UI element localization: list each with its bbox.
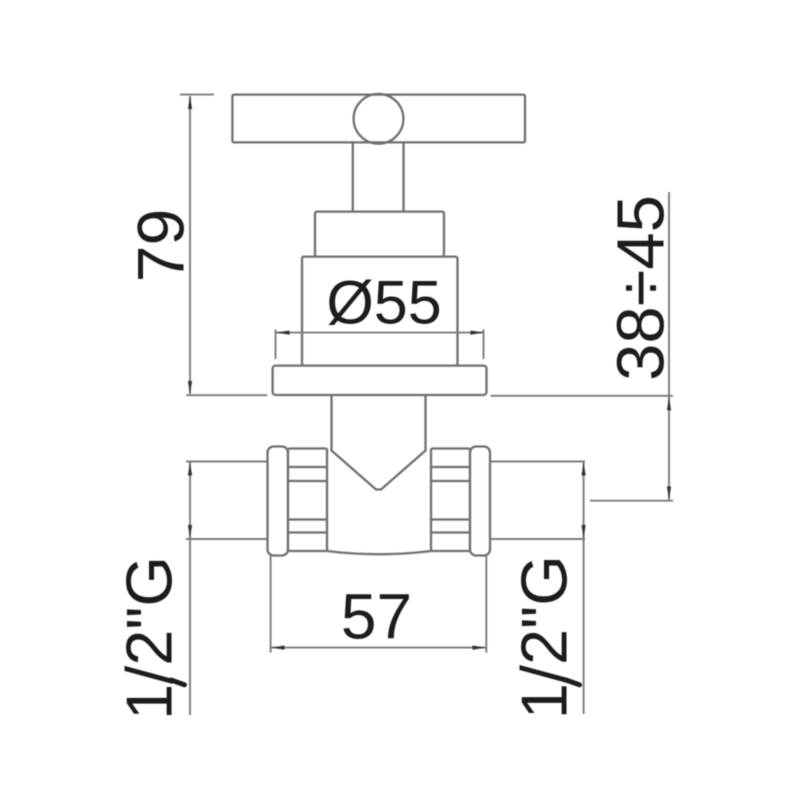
svg-text:Ø55: Ø55 [326, 269, 441, 337]
svg-text:79: 79 [124, 209, 198, 282]
svg-text:57: 57 [341, 581, 412, 653]
svg-text:38÷45: 38÷45 [604, 195, 679, 381]
svg-text:1/2"G: 1/2"G [508, 555, 581, 719]
svg-text:1/2"G: 1/2"G [113, 556, 186, 720]
